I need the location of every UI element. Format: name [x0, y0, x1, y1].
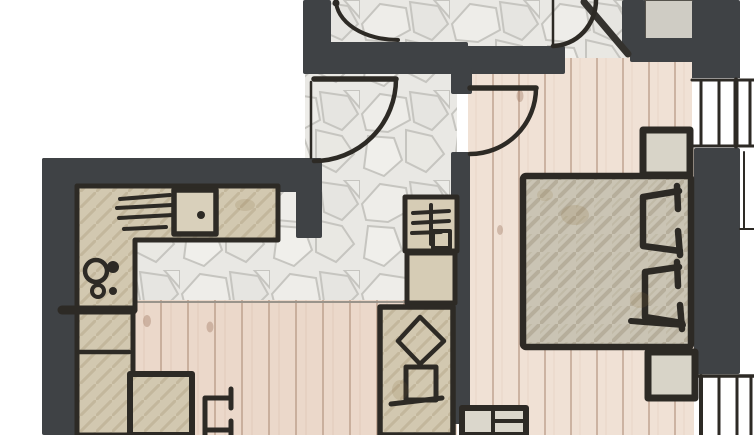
wall-right-top: [692, 0, 740, 80]
kitchen-sink: [174, 190, 216, 234]
floor-plan-canvas: [0, 0, 754, 435]
wall-upper-room-bottom: [305, 42, 468, 74]
sink-drain-dot: [197, 211, 205, 219]
hall-wardrobe: [380, 307, 453, 435]
wall-left: [42, 158, 77, 435]
terrace-edge-lines: [740, 152, 754, 229]
nightstand-lower: [648, 352, 695, 398]
nightstand-upper: [643, 130, 690, 175]
knob-dot: [109, 287, 117, 295]
dining-table: [130, 374, 192, 435]
hall-cabinet-middle: [407, 253, 455, 303]
wall-kitchen-top-stub: [296, 190, 322, 238]
burner-dot: [107, 261, 119, 273]
tall-cabinet-column: [77, 310, 133, 435]
top-right-niche: [645, 0, 694, 42]
floor-plan-drawing: [0, 0, 754, 435]
wall-right-mid: [694, 148, 740, 374]
wall-niche-bottom: [630, 38, 698, 62]
